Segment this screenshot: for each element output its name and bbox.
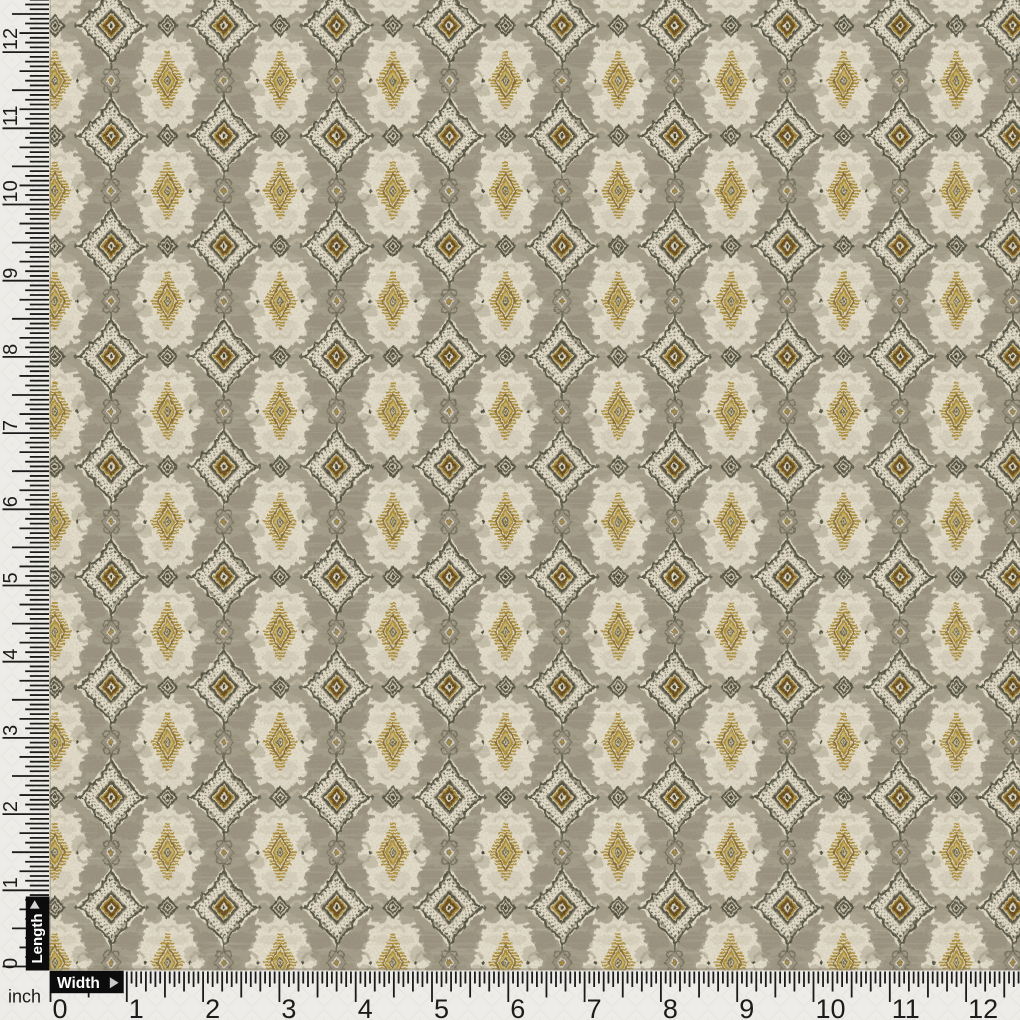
svg-text:10: 10 (816, 994, 846, 1020)
svg-text:0: 0 (0, 958, 22, 969)
svg-text:3: 3 (0, 725, 22, 736)
svg-text:4: 4 (358, 994, 373, 1020)
svg-text:12: 12 (968, 994, 998, 1020)
svg-text:11: 11 (0, 106, 22, 127)
svg-text:8: 8 (0, 344, 22, 355)
svg-text:1: 1 (0, 877, 22, 888)
svg-text:Width: Width (57, 975, 100, 992)
svg-text:2: 2 (205, 994, 220, 1020)
svg-text:4: 4 (0, 649, 22, 660)
svg-text:6: 6 (0, 496, 22, 507)
svg-text:0: 0 (53, 994, 68, 1020)
svg-text:10: 10 (0, 180, 22, 202)
svg-text:12: 12 (0, 28, 22, 50)
svg-text:11: 11 (892, 994, 920, 1020)
svg-text:2: 2 (0, 801, 22, 812)
svg-text:7: 7 (0, 420, 22, 431)
svg-text:9: 9 (739, 994, 754, 1020)
svg-text:3: 3 (281, 994, 296, 1020)
svg-text:1: 1 (129, 994, 144, 1020)
svg-text:inch: inch (8, 987, 41, 1007)
svg-text:8: 8 (663, 994, 678, 1020)
svg-text:5: 5 (434, 994, 449, 1020)
svg-text:6: 6 (510, 994, 525, 1020)
svg-text:9: 9 (0, 268, 22, 279)
svg-text:Length: Length (29, 914, 46, 964)
svg-text:7: 7 (587, 994, 602, 1020)
svg-text:5: 5 (0, 572, 22, 583)
